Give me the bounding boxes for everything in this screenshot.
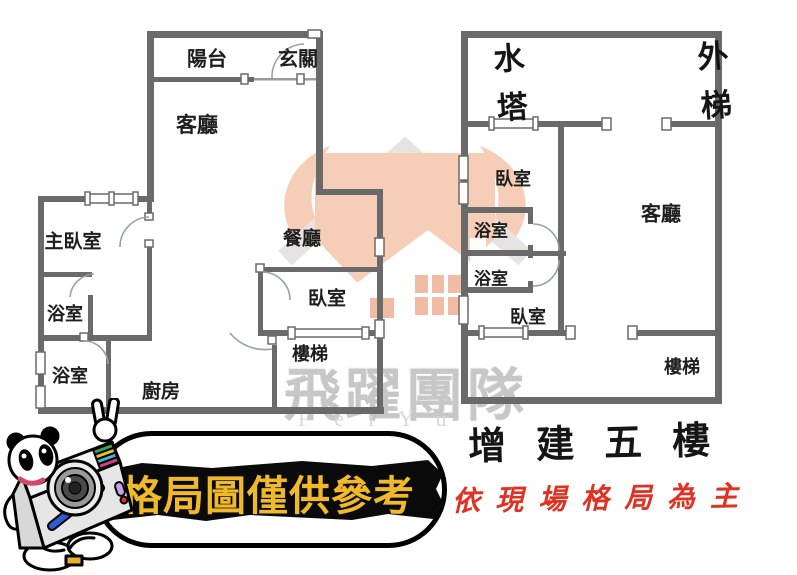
panda-camera-mascot bbox=[0, 398, 150, 575]
disclaimer-banner-text: 格局圖僅供參考 bbox=[121, 462, 415, 522]
panda-head bbox=[8, 428, 58, 484]
floor-plan-page: 飛躍團隊 FeiYu bbox=[0, 0, 797, 575]
peace-sign-hand bbox=[92, 398, 119, 441]
